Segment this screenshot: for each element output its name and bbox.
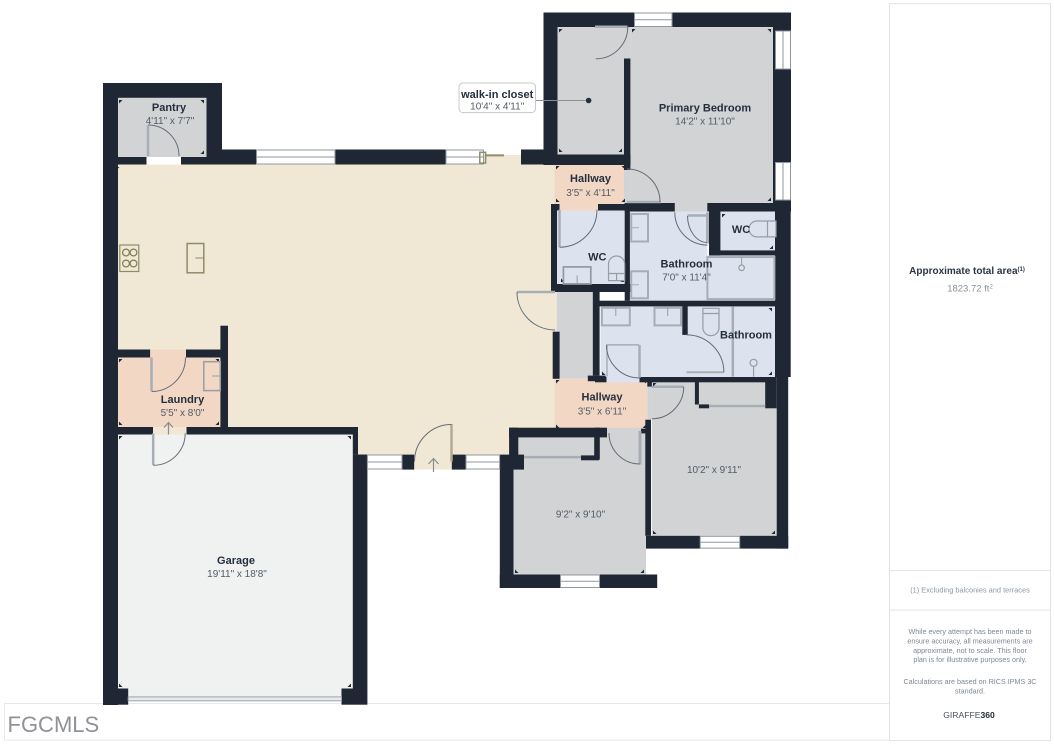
svg-text:approximate, not to scale. Thi: approximate, not to scale. This floor xyxy=(913,646,1027,655)
svg-text:Approximate total area(1): Approximate total area(1) xyxy=(909,266,1025,277)
svg-text:3'5" x 6'11": 3'5" x 6'11" xyxy=(578,407,627,418)
svg-text:plan is for illustrative purpo: plan is for illustrative purposes only. xyxy=(913,655,1026,664)
svg-text:WC: WC xyxy=(588,252,606,264)
svg-text:10'2" x 9'11": 10'2" x 9'11" xyxy=(687,465,742,476)
svg-text:Garage: Garage xyxy=(217,555,255,567)
svg-text:19'11" x 18'8": 19'11" x 18'8" xyxy=(207,569,267,580)
svg-text:1823.72 ft2: 1823.72 ft2 xyxy=(947,284,993,295)
svg-text:(1) Excluding balconies and te: (1) Excluding balconies and terraces xyxy=(910,586,1030,595)
svg-text:walk-in closet: walk-in closet xyxy=(460,89,533,101)
svg-text:3'5" x 4'11": 3'5" x 4'11" xyxy=(566,188,615,199)
svg-text:Pantry: Pantry xyxy=(152,102,187,114)
svg-text:FGCMLS: FGCMLS xyxy=(8,712,100,737)
svg-text:14'2" x 11'10": 14'2" x 11'10" xyxy=(675,117,735,128)
svg-text:Laundry: Laundry xyxy=(161,394,205,406)
svg-text:ensure accuracy, all measureme: ensure accuracy, all measurements are xyxy=(907,636,1032,645)
svg-text:Bathroom: Bathroom xyxy=(720,330,772,342)
svg-text:Hallway: Hallway xyxy=(570,173,612,185)
svg-text:7'0" x 11'4": 7'0" x 11'4" xyxy=(662,273,711,284)
svg-text:Bathroom: Bathroom xyxy=(661,259,713,271)
svg-text:WC: WC xyxy=(732,224,750,236)
svg-text:4'11" x 7'7": 4'11" x 7'7" xyxy=(146,116,195,127)
svg-text:Hallway: Hallway xyxy=(582,392,624,404)
svg-text:5'5" x 8'0": 5'5" x 8'0" xyxy=(161,408,205,419)
svg-text:9'2" x 9'10": 9'2" x 9'10" xyxy=(556,510,606,521)
svg-text:While every attempt has been m: While every attempt has been made to xyxy=(908,627,1031,636)
svg-text:GIRAFFE360: GIRAFFE360 xyxy=(943,710,995,720)
svg-text:Primary Bedroom: Primary Bedroom xyxy=(659,103,752,115)
svg-text:Calculations are based on RICS: Calculations are based on RICS IPMS 3C xyxy=(903,677,1036,686)
svg-text:10'4" x 4'11": 10'4" x 4'11" xyxy=(470,102,525,113)
svg-text:standard.: standard. xyxy=(955,686,985,695)
